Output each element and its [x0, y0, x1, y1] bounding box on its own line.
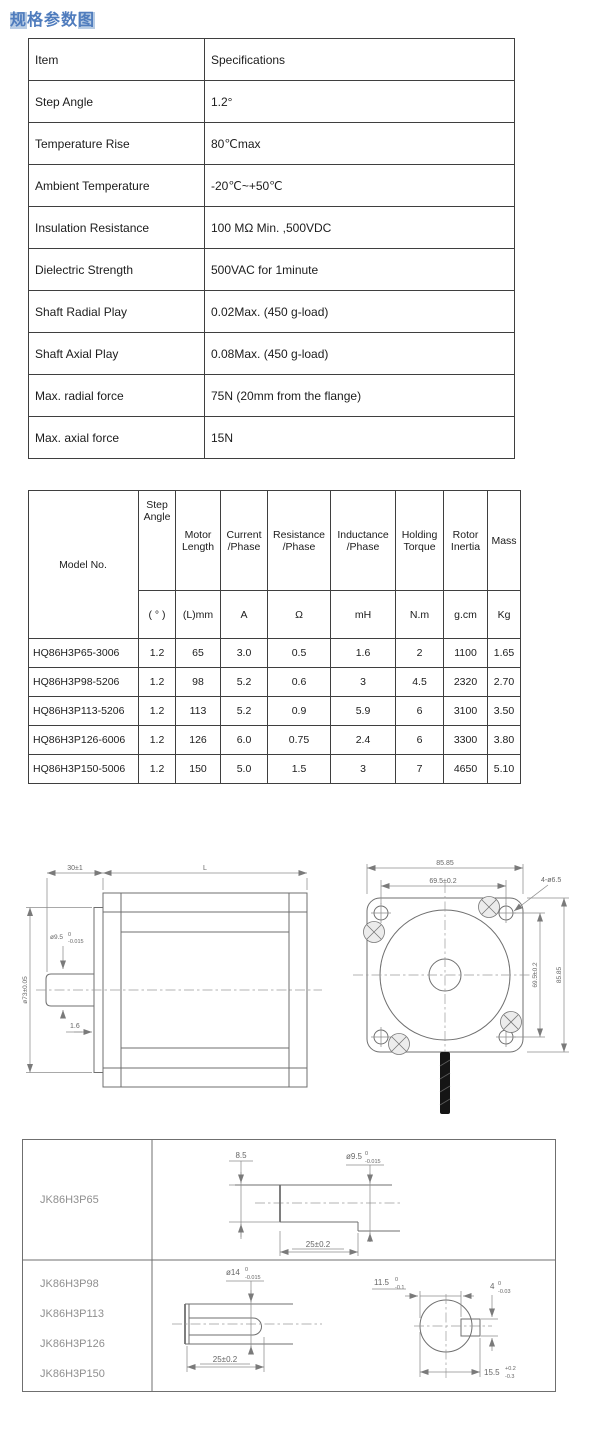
unit-mass: Kg: [488, 591, 521, 639]
table-row: HQ86H3P98-5206 1.2 98 5.2 0.6 3 4.5 2320…: [29, 668, 521, 697]
col-header-mass: Mass: [488, 491, 521, 591]
cell-inertia: 1100: [444, 639, 488, 668]
table-row: Insulation Resistance100 MΩ Min. ,500VDC: [29, 207, 515, 249]
motor-cable: [440, 1052, 450, 1114]
dim-shaft-diameter-sup: 0: [68, 932, 71, 938]
dim-shaft-dia-row2-sub: -0.015: [245, 1275, 261, 1281]
cell-length: 65: [176, 639, 221, 668]
col-header-step-angle: Step Angle: [139, 491, 176, 591]
cell-torque: 4.5: [396, 668, 444, 697]
spec-item: Shaft Axial Play: [29, 333, 205, 375]
unit-inertia: g.cm: [444, 591, 488, 639]
spec-item: Insulation Resistance: [29, 207, 205, 249]
shaft-row2-model: JK86H3P150: [40, 1368, 105, 1380]
col-header-inductance: Inductance /Phase: [331, 491, 396, 591]
col-header-resistance: Resistance /Phase: [268, 491, 331, 591]
cell-inductance: 2.4: [331, 726, 396, 755]
motor-side-view: 30±1 L ø73±0.05 ø9.5 0 -0.015 1.6: [22, 865, 322, 1087]
dim-key-length: 25±0.2: [213, 1355, 238, 1364]
unit-resistance: Ω: [268, 591, 331, 639]
dim-flat-width: 11.5: [374, 1278, 390, 1287]
spec-header-item: Item: [29, 39, 205, 81]
col-header-torque: Holding Torque: [396, 491, 444, 591]
dim-shaft-dia-row2-sup: 0: [245, 1267, 248, 1273]
table-row: Max. axial force15N: [29, 417, 515, 459]
dim-flange-height: 85.85: [556, 966, 563, 983]
cell-current: 5.0: [221, 755, 268, 784]
dim-body-length: L: [203, 865, 207, 872]
shaft-cross-section: 11.5 0 -0.1 4 0 -0.03 15.5 +0.2: [372, 1277, 516, 1380]
table-row: HQ86H3P65-3006 1.2 65 3.0 0.5 1.6 2 1100…: [29, 639, 521, 668]
shaft-row2-model: JK86H3P98: [40, 1278, 99, 1290]
cell-step: 1.2: [139, 726, 176, 755]
dim-key-width: 4: [490, 1282, 495, 1291]
model-table: Model No. Step Angle Motor Length Curren…: [28, 490, 521, 784]
dim-total-height-sub: -0.3: [505, 1374, 514, 1380]
title-middle: 格参数: [27, 12, 78, 29]
cell-length: 113: [176, 697, 221, 726]
cell-step: 1.2: [139, 755, 176, 784]
cell-step: 1.2: [139, 639, 176, 668]
unit-motor-length: (L)mm: [176, 591, 221, 639]
cell-inductance: 1.6: [331, 639, 396, 668]
spec-item: Dielectric Strength: [29, 249, 205, 291]
dim-flat-width-sub: -0.1: [395, 1285, 404, 1291]
shaft-flat-detail: 8.5 ø9.5 0 -0.015 25±0.2: [229, 1151, 402, 1256]
cell-step: 1.2: [139, 697, 176, 726]
spec-value: 75N (20mm from the flange): [205, 375, 515, 417]
dim-total-height: 15.5: [484, 1368, 500, 1377]
cell-current: 5.2: [221, 668, 268, 697]
shaft-detail-drawings: JK86H3P65 JK86H3P98 JK86H3P113 JK86H3P12…: [22, 1139, 556, 1392]
cell-model: HQ86H3P65-3006: [29, 639, 139, 668]
shaft-row2-model: JK86H3P126: [40, 1338, 105, 1350]
dim-flat-depth: 8.5: [235, 1151, 247, 1160]
unit-step-angle: ( ° ): [139, 591, 176, 639]
cell-length: 98: [176, 668, 221, 697]
cell-mass: 5.10: [488, 755, 521, 784]
screw-head-icons: [364, 897, 522, 1055]
spec-item: Ambient Temperature: [29, 165, 205, 207]
cell-mass: 3.50: [488, 697, 521, 726]
dim-shaft-dia-row1: ø9.5: [346, 1152, 363, 1161]
motor-dimension-drawings: 30±1 L ø73±0.05 ø9.5 0 -0.015 1.6: [0, 838, 608, 1120]
cell-torque: 6: [396, 697, 444, 726]
spec-item: Shaft Radial Play: [29, 291, 205, 333]
cell-inertia: 4650: [444, 755, 488, 784]
spec-value: 0.08Max. (450 g-load): [205, 333, 515, 375]
table-row: Temperature Rise80℃max: [29, 123, 515, 165]
dim-mount-holes: 4-ø6.5: [541, 877, 561, 884]
cell-resistance: 0.9: [268, 697, 331, 726]
dim-shaft-dia-row2: ø14: [226, 1268, 240, 1277]
table-row: Dielectric Strength500VAC for 1minute: [29, 249, 515, 291]
table-row: Max. radial force75N (20mm from the flan…: [29, 375, 515, 417]
unit-inductance: mH: [331, 591, 396, 639]
table-row: Model No. Step Angle Motor Length Curren…: [29, 491, 521, 591]
motor-front-view: 85.85 69.5±0.2 4-ø6.5 69.5±0.2 85.85: [353, 860, 569, 1114]
dim-key-width-sup: 0: [498, 1281, 501, 1287]
cell-inertia: 2320: [444, 668, 488, 697]
cell-current: 3.0: [221, 639, 268, 668]
dim-flat-width-sup: 0: [395, 1277, 398, 1283]
spec-item: Temperature Rise: [29, 123, 205, 165]
cell-step: 1.2: [139, 668, 176, 697]
shaft-key-top-view: ø14 0 -0.015 25±0.2: [172, 1267, 322, 1372]
cell-torque: 2: [396, 639, 444, 668]
table-row: Ambient Temperature-20℃~+50℃: [29, 165, 515, 207]
cell-torque: 7: [396, 755, 444, 784]
spec-header-value: Specifications: [205, 39, 515, 81]
dim-shaft-length: 30±1: [67, 865, 83, 872]
spec-item: Max. axial force: [29, 417, 205, 459]
cell-mass: 2.70: [488, 668, 521, 697]
table-row: HQ86H3P150-5006 1.2 150 5.0 1.5 3 7 4650…: [29, 755, 521, 784]
dim-pilot-diameter: ø73±0.05: [22, 976, 29, 1004]
col-header-inertia: Rotor Inertia: [444, 491, 488, 591]
cell-mass: 1.65: [488, 639, 521, 668]
cell-inertia: 3100: [444, 697, 488, 726]
cell-inertia: 3300: [444, 726, 488, 755]
spec-sheet-page: 规格参数图 Item Specifications Step Angle1.2°…: [0, 0, 608, 1443]
unit-torque: N.m: [396, 591, 444, 639]
spec-item: Step Angle: [29, 81, 205, 123]
cell-inductance: 3: [331, 755, 396, 784]
cell-resistance: 0.5: [268, 639, 331, 668]
table-row: HQ86H3P126-6006 1.2 126 6.0 0.75 2.4 6 3…: [29, 726, 521, 755]
cell-current: 6.0: [221, 726, 268, 755]
dim-shaft-diameter-sub: -0.015: [68, 939, 84, 945]
dim-shaft-dia-row1-sup: 0: [365, 1151, 368, 1157]
dim-key-width-sub: -0.03: [498, 1289, 511, 1295]
spec-value: -20℃~+50℃: [205, 165, 515, 207]
table-row: Step Angle1.2°: [29, 81, 515, 123]
cell-mass: 3.80: [488, 726, 521, 755]
spec-value: 500VAC for 1minute: [205, 249, 515, 291]
shaft-row2-model: JK86H3P113: [40, 1308, 104, 1320]
specifications-table: Item Specifications Step Angle1.2° Tempe…: [28, 38, 515, 459]
col-header-motor-length: Motor Length: [176, 491, 221, 591]
unit-current: A: [221, 591, 268, 639]
dim-shaft-diameter: ø9.5: [50, 934, 63, 941]
table-row: Shaft Radial Play0.02Max. (450 g-load): [29, 291, 515, 333]
table-row: HQ86H3P113-5206 1.2 113 5.2 0.9 5.9 6 31…: [29, 697, 521, 726]
title-char-highlight: 规: [10, 12, 27, 29]
spec-item: Max. radial force: [29, 375, 205, 417]
shaft-detail-table: JK86H3P65 JK86H3P98 JK86H3P113 JK86H3P12…: [22, 1139, 556, 1392]
spec-value: 0.02Max. (450 g-load): [205, 291, 515, 333]
page-title: 规格参数图: [10, 6, 95, 30]
cell-resistance: 0.75: [268, 726, 331, 755]
table-row: Item Specifications: [29, 39, 515, 81]
shaft-row1-model: JK86H3P65: [40, 1194, 99, 1206]
cell-inductance: 5.9: [331, 697, 396, 726]
table-row: Shaft Axial Play0.08Max. (450 g-load): [29, 333, 515, 375]
dim-flat-length: 25±0.2: [306, 1240, 331, 1249]
dim-bolt-spacing-top: 69.5±0.2: [429, 878, 456, 885]
dim-flange-width: 85.85: [436, 860, 454, 867]
cell-torque: 6: [396, 726, 444, 755]
cell-model: HQ86H3P150-5006: [29, 755, 139, 784]
col-header-current: Current /Phase: [221, 491, 268, 591]
spec-value: 80℃max: [205, 123, 515, 165]
cell-model: HQ86H3P126-6006: [29, 726, 139, 755]
cell-length: 126: [176, 726, 221, 755]
title-char-highlight: 图: [78, 12, 95, 29]
cell-length: 150: [176, 755, 221, 784]
col-header-model: Model No.: [29, 491, 139, 639]
cell-model: HQ86H3P98-5206: [29, 668, 139, 697]
cell-current: 5.2: [221, 697, 268, 726]
dim-boss-height: 1.6: [70, 1023, 80, 1030]
dim-total-height-sup: +0.2: [505, 1366, 516, 1372]
cell-model: HQ86H3P113-5206: [29, 697, 139, 726]
cell-resistance: 0.6: [268, 668, 331, 697]
dim-bolt-spacing-side: 69.5±0.2: [532, 962, 539, 988]
spec-value: 1.2°: [205, 81, 515, 123]
spec-value: 15N: [205, 417, 515, 459]
cell-inductance: 3: [331, 668, 396, 697]
dim-shaft-dia-row1-sub: -0.015: [365, 1159, 381, 1165]
spec-value: 100 MΩ Min. ,500VDC: [205, 207, 515, 249]
cell-resistance: 1.5: [268, 755, 331, 784]
